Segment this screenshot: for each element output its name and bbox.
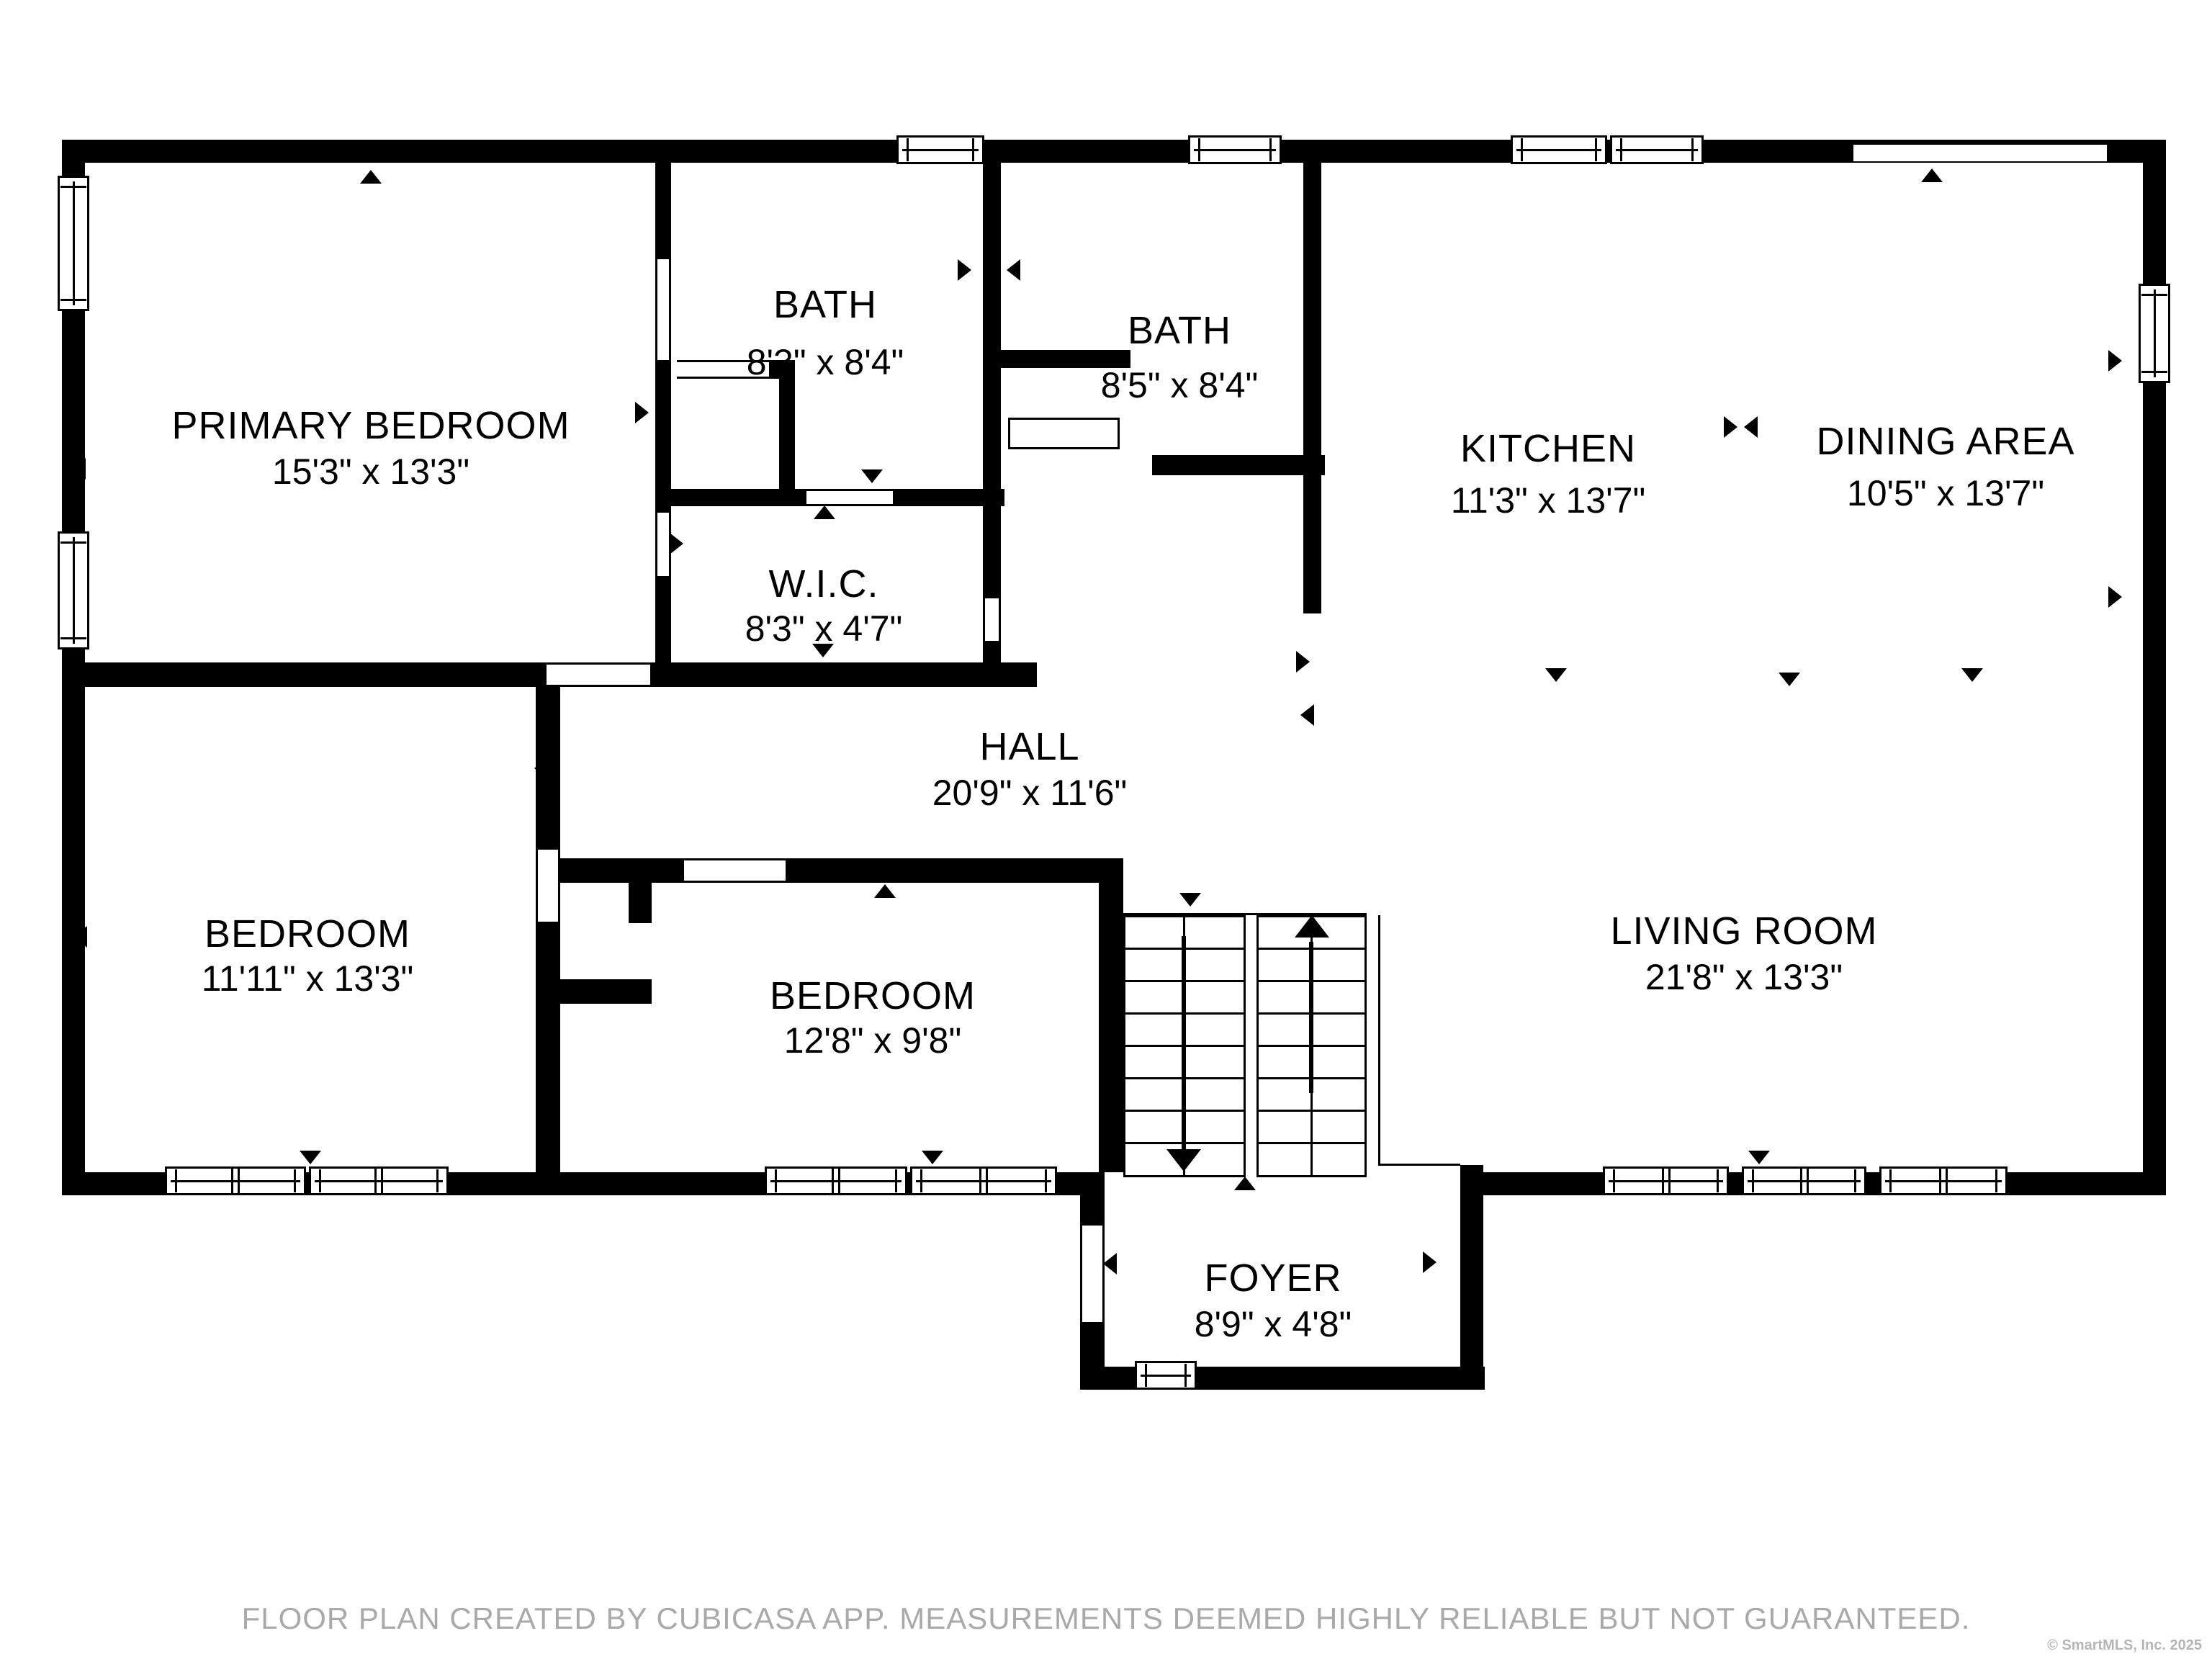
window-cap	[775, 1169, 777, 1192]
door-swing-icon	[300, 1151, 321, 1164]
door-trim	[669, 259, 671, 360]
room-label: HALL20'9" x 11'6"	[932, 724, 1128, 814]
window-mullion	[315, 1180, 443, 1182]
room-dimensions: 8'9" x 4'8"	[1195, 1303, 1352, 1345]
window-mullion	[1939, 1169, 1941, 1193]
room-name: W.I.C.	[745, 562, 903, 606]
door-swing-icon	[1545, 668, 1567, 682]
room-label: BATH8'5" x 8'4"	[1101, 308, 1259, 406]
room-dimensions: 8'3" x 4'7"	[745, 608, 903, 649]
wall	[779, 379, 795, 490]
room-name: LIVING ROOM	[1610, 909, 1877, 953]
door-opening	[536, 850, 560, 922]
window-mullion	[1516, 149, 1601, 151]
window-cap	[920, 1169, 922, 1192]
window-mullion	[770, 1180, 902, 1182]
window-mullion	[902, 149, 979, 151]
window-mullion	[1807, 1169, 1809, 1193]
window-cap	[175, 1169, 177, 1192]
room-name: KITCHEN	[1451, 426, 1646, 471]
door-trim	[1080, 1226, 1082, 1322]
door-swing-icon	[360, 170, 382, 184]
vanity-fixture	[1008, 418, 1120, 449]
window-mullion	[832, 1169, 834, 1193]
room-label: BATH8'3" x 8'4"	[747, 282, 904, 383]
window-cap	[1595, 138, 1597, 161]
room-label: W.I.C.8'3" x 4'7"	[745, 562, 903, 649]
wall	[560, 858, 684, 883]
floor-plan: PRIMARY BEDROOM15'3" x 13'3"BATH8'3" x 8…	[0, 0, 2212, 1659]
door-trim	[655, 259, 657, 360]
door-trim	[558, 850, 560, 922]
door-swing-icon	[72, 458, 86, 480]
wall	[1460, 1165, 1483, 1390]
window-cap	[1854, 1169, 1856, 1192]
door-swing-icon	[1744, 416, 1758, 438]
door-trim	[547, 662, 650, 665]
window-mullion	[1668, 1169, 1671, 1193]
window-mullion	[979, 1169, 981, 1193]
room-dimensions: 8'3" x 8'4"	[747, 341, 904, 383]
window-cap	[1269, 138, 1272, 161]
staircase-rail	[1378, 1164, 1460, 1166]
door-swing-icon	[1921, 168, 1943, 182]
room-name: DINING AREA	[1816, 419, 2074, 464]
wall	[1099, 858, 1123, 1172]
window-mullion	[73, 181, 75, 305]
room-label: KITCHEN11'3" x 13'7"	[1451, 426, 1646, 521]
window-cap	[2141, 371, 2167, 373]
window-cap	[907, 138, 909, 161]
wall	[536, 922, 560, 1195]
room-name: PRIMARY BEDROOM	[171, 403, 570, 448]
room-label: FOYER8'9" x 4'8"	[1195, 1256, 1352, 1345]
door-trim	[547, 685, 650, 687]
room-name: BEDROOM	[202, 912, 414, 956]
door-swing-icon	[874, 884, 896, 898]
window-cap	[972, 138, 974, 161]
room-dimensions: 15'3" x 13'3"	[171, 451, 570, 493]
wall	[1080, 1172, 1105, 1226]
room-dimensions: 11'11" x 13'3"	[202, 958, 414, 999]
door-trim	[999, 598, 1001, 641]
door-trim	[983, 598, 985, 641]
door-trim	[684, 858, 786, 860]
room-name: HALL	[932, 724, 1128, 769]
stairs-down-arrow-icon	[1166, 1149, 1201, 1172]
door-swing-icon	[814, 505, 835, 519]
room-label: BEDROOM12'8" x 9'8"	[770, 974, 976, 1061]
window-cap	[895, 1169, 897, 1192]
wall	[893, 489, 1004, 506]
room-name: BATH	[1101, 308, 1259, 353]
door-opening	[547, 662, 650, 687]
window-cap	[1045, 1169, 1047, 1192]
wall	[1152, 455, 1325, 475]
window-cap	[2141, 294, 2167, 296]
window-mullion	[73, 537, 75, 644]
window-mullion	[231, 1169, 233, 1193]
window-mullion	[986, 1169, 988, 1193]
room-dimensions: 10'5" x 13'7"	[1816, 472, 2074, 514]
window-mullion	[916, 1180, 1051, 1182]
wall	[62, 662, 547, 687]
room-name: FOYER	[1195, 1256, 1352, 1300]
wall	[655, 163, 671, 259]
wall	[655, 576, 671, 662]
window-mullion	[1616, 149, 1698, 151]
staircase-rail	[1378, 915, 1380, 1166]
copyright-text: © SmartMLS, Inc. 2025	[1914, 1637, 2202, 1654]
window-mullion	[1609, 1180, 1723, 1182]
staircase-step	[1256, 1110, 1367, 1112]
window-cap	[60, 541, 86, 544]
window-mullion	[1748, 1180, 1861, 1182]
window-cap	[60, 186, 86, 188]
room-label: BEDROOM11'11" x 13'3"	[202, 912, 414, 999]
window-cap	[319, 1169, 321, 1192]
stairs-down-arrow	[1182, 936, 1186, 1152]
door-swing-icon	[1234, 1177, 1256, 1190]
window-cap	[1889, 1169, 1892, 1192]
window-cap	[436, 1169, 439, 1192]
window-cap	[294, 1169, 296, 1192]
window-mullion	[1141, 1375, 1191, 1377]
door-trim	[684, 881, 786, 883]
window-mullion	[1194, 149, 1276, 151]
door-swing-icon	[2108, 586, 2122, 608]
room-dimensions: 20'9" x 11'6"	[932, 772, 1128, 814]
window-cap	[1613, 1169, 1615, 1192]
room-name: BEDROOM	[770, 974, 976, 1018]
room-dimensions: 8'5" x 8'4"	[1101, 364, 1259, 406]
door-swing-icon	[958, 259, 971, 281]
door-swing-icon	[670, 533, 683, 554]
room-label: DINING AREA10'5" x 13'7"	[1816, 419, 2074, 514]
room-label: LIVING ROOM21'8" x 13'3"	[1610, 909, 1877, 998]
window-cap	[1620, 138, 1622, 161]
room-dimensions: 12'8" x 9'8"	[770, 1020, 976, 1061]
door-opening	[684, 858, 786, 883]
window-cap	[60, 637, 86, 639]
wall	[983, 163, 1001, 505]
window-mullion	[1885, 1180, 2002, 1182]
window-mullion	[374, 1169, 377, 1193]
wall	[629, 883, 652, 923]
window-cap	[1145, 1364, 1147, 1387]
window-mullion	[171, 1180, 300, 1182]
door-swing-icon	[534, 757, 548, 779]
picture-window	[1853, 141, 2107, 161]
window-mullion	[381, 1169, 383, 1193]
footer-note: FLOOR PLAN CREATED BY CUBICASA APP. MEAS…	[0, 1601, 2212, 1636]
wall	[1303, 163, 1321, 613]
window-cap	[1717, 1169, 1719, 1192]
room-label: PRIMARY BEDROOM15'3" x 13'3"	[171, 403, 570, 493]
door-swing-icon	[1724, 416, 1737, 438]
door-trim	[655, 513, 657, 576]
door-swing-icon	[1179, 893, 1201, 907]
door-trim	[536, 850, 538, 922]
door-swing-icon	[1296, 651, 1310, 673]
stairs-up-arrow-icon	[1295, 915, 1329, 938]
window-mullion	[238, 1169, 240, 1193]
window-cap	[60, 299, 86, 301]
window-cap	[1521, 138, 1523, 161]
window-mullion	[838, 1169, 840, 1193]
wall	[62, 140, 2166, 163]
window-cap	[1198, 138, 1200, 161]
window-cap	[1752, 1169, 1754, 1192]
door-swing-icon	[1300, 704, 1314, 726]
wall	[655, 489, 806, 506]
staircase-step	[1256, 1142, 1367, 1144]
door-swing-icon	[73, 926, 87, 948]
door-swing-icon	[635, 402, 649, 423]
door-swing-icon	[861, 469, 883, 483]
window-mullion	[1946, 1169, 1948, 1193]
door-swing-icon	[1779, 673, 1800, 686]
room-dimensions: 21'8" x 13'3"	[1610, 956, 1877, 998]
room-dimensions: 11'3" x 13'7"	[1451, 480, 1646, 521]
stairs-up-arrow	[1309, 942, 1313, 1093]
wall	[786, 858, 1123, 883]
window-mullion	[2154, 289, 2156, 377]
door-swing-icon	[1103, 1253, 1117, 1274]
window-mullion	[1662, 1169, 1664, 1193]
door-swing-icon	[1423, 1251, 1437, 1273]
door-swing-icon	[1748, 1151, 1770, 1164]
door-opening	[1080, 1226, 1105, 1322]
door-swing-icon	[2108, 350, 2122, 372]
window-cap	[1184, 1364, 1187, 1387]
door-swing-icon	[1961, 668, 1983, 682]
door-trim	[806, 489, 893, 491]
door-swing-icon	[922, 1151, 943, 1164]
wall	[650, 662, 1037, 687]
wall	[983, 505, 1001, 598]
window-mullion	[1800, 1169, 1802, 1193]
window-cap	[1691, 138, 1694, 161]
door-swing-icon	[1007, 259, 1020, 281]
room-name: BATH	[747, 282, 904, 327]
wall	[536, 979, 652, 1004]
window-cap	[1995, 1169, 1997, 1192]
